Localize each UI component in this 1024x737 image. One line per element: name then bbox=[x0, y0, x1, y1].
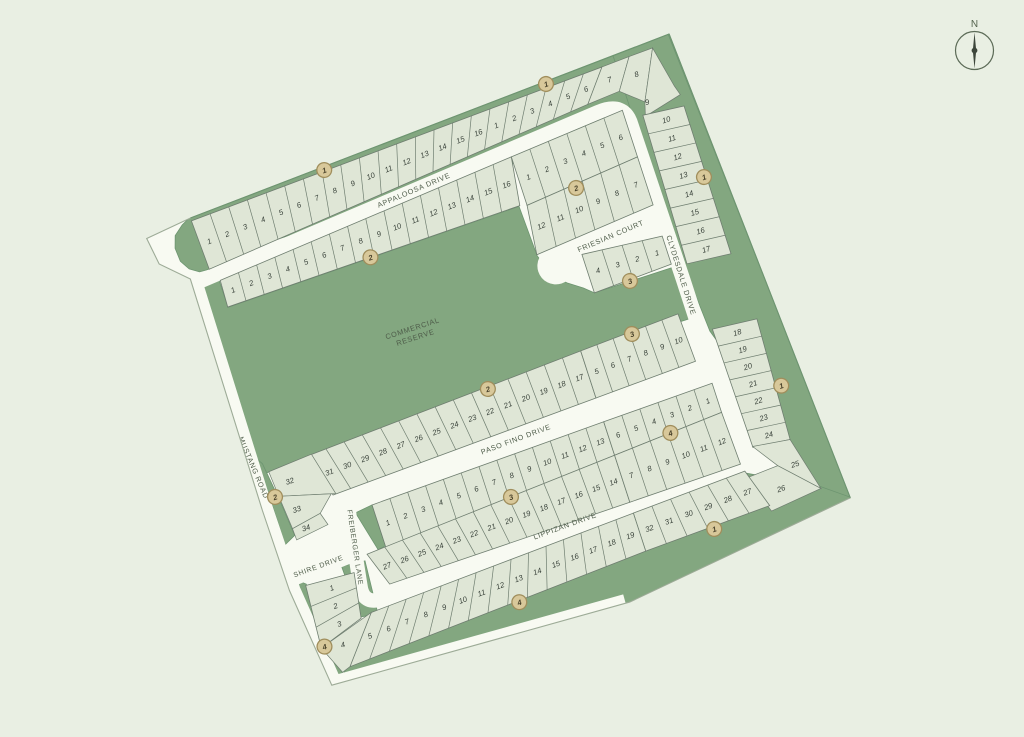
svg-text:N: N bbox=[971, 19, 978, 30]
